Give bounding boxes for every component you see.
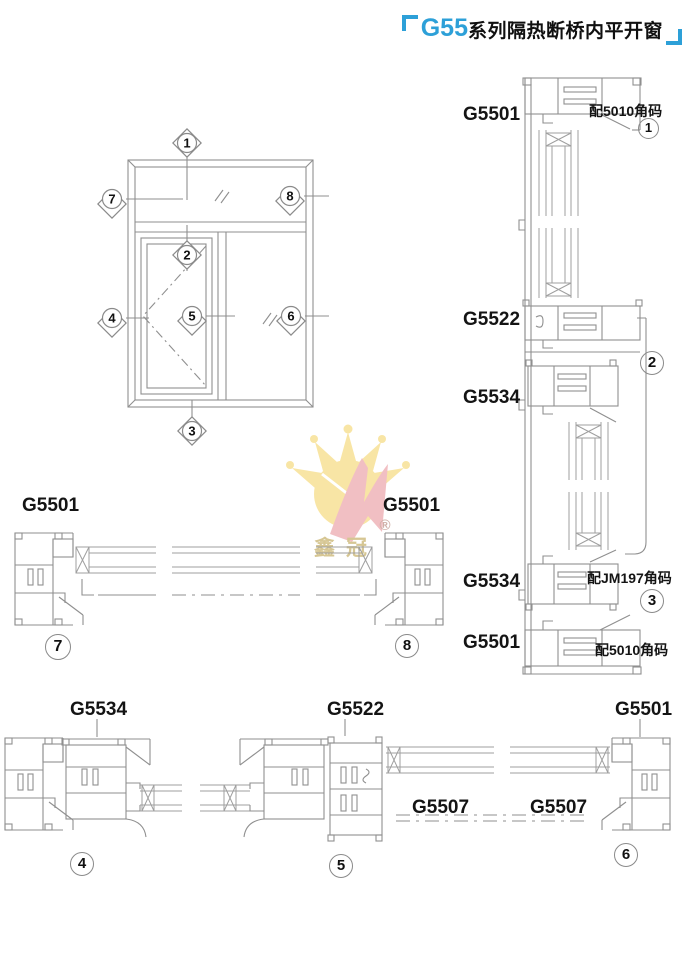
section-marker-6: 6 bbox=[277, 307, 305, 336]
profile-label-bottom-frame: G5501 bbox=[463, 632, 520, 654]
right-frame-profile bbox=[602, 738, 670, 830]
mid-label-right: G5501 bbox=[383, 495, 440, 517]
title-bracket-bottom-right-icon bbox=[666, 29, 682, 45]
callout-5: 5 bbox=[329, 854, 353, 878]
left-jamb-profile bbox=[15, 533, 83, 625]
right-jamb-profile bbox=[375, 533, 443, 625]
mid-label-left: G5501 bbox=[22, 495, 79, 517]
profile-transom-g5522 bbox=[523, 300, 642, 352]
section-marker-5: 5 bbox=[178, 307, 206, 336]
section-marker-7: 7 bbox=[98, 190, 126, 219]
casement-glass-unit bbox=[140, 785, 250, 811]
profile-label-top-frame: G5501 bbox=[463, 104, 520, 126]
svg-text:3: 3 bbox=[188, 424, 195, 439]
page-title: G55 系列隔热断桥内平开窗 bbox=[402, 15, 682, 45]
bottom-label-right: G5501 bbox=[615, 699, 672, 721]
drawing-sheet: { "colors": { "accent_blue": "#2da0d8", … bbox=[0, 0, 700, 965]
glazing-upper bbox=[539, 130, 578, 298]
section-marker-1: 1 bbox=[173, 129, 201, 157]
glass-label-left: G5507 bbox=[412, 797, 469, 819]
profile-label-transom: G5522 bbox=[463, 309, 520, 331]
svg-text:8: 8 bbox=[286, 189, 293, 204]
callout-3: 3 bbox=[640, 589, 664, 613]
left-frame-profile bbox=[5, 738, 73, 830]
svg-text:5: 5 bbox=[188, 309, 195, 324]
sash-edge-lines bbox=[82, 579, 376, 595]
callout-8: 8 bbox=[395, 634, 419, 658]
section-marker-4: 4 bbox=[98, 309, 126, 338]
svg-text:2: 2 bbox=[183, 248, 190, 263]
horizontal-section-top-drawing bbox=[10, 525, 450, 635]
bottom-label-left: G5534 bbox=[70, 699, 127, 721]
fixed-glass-unit bbox=[386, 747, 610, 773]
profile-label-upper-sash: G5534 bbox=[463, 387, 520, 409]
callout-7: 7 bbox=[45, 634, 71, 660]
left-sash-profile bbox=[62, 739, 150, 837]
corner-code-note-mid: 配JM197角码 bbox=[587, 568, 672, 588]
callout-6: 6 bbox=[614, 843, 638, 867]
glazing-lower bbox=[569, 422, 608, 550]
svg-text:7: 7 bbox=[108, 192, 115, 207]
profile-upper-sash-g5534 bbox=[526, 360, 618, 422]
title-bracket-top-left-icon bbox=[402, 15, 418, 31]
horizontal-section-bottom-drawing bbox=[0, 715, 700, 855]
glass-mark-right bbox=[263, 313, 277, 326]
glass-unit-top-light bbox=[76, 547, 372, 573]
title-series-name: 系列隔热断桥内平开窗 bbox=[468, 15, 663, 45]
window-elevation-drawing: 1 2 3 7 8 4 5 6 bbox=[85, 125, 330, 465]
callout-1: 1 bbox=[638, 118, 659, 139]
corner-code-note-bottom: 配5010角码 bbox=[595, 640, 668, 660]
middle-sash-profile bbox=[240, 739, 328, 837]
glass-mark-top bbox=[215, 190, 229, 203]
glass-label-right: G5507 bbox=[530, 797, 587, 819]
label-leader-lines bbox=[97, 719, 640, 737]
svg-text:4: 4 bbox=[108, 311, 116, 326]
mullion-profile-g5522 bbox=[328, 737, 382, 841]
callout-4: 4 bbox=[70, 852, 94, 876]
section-marker-2: 2 bbox=[173, 241, 201, 269]
bottom-label-mid: G5522 bbox=[327, 699, 384, 721]
callout-2: 2 bbox=[640, 351, 664, 375]
section-marker-8: 8 bbox=[276, 187, 304, 216]
section-marker-3: 3 bbox=[178, 417, 206, 445]
svg-text:6: 6 bbox=[287, 309, 294, 324]
profile-label-lower-sash: G5534 bbox=[463, 571, 520, 593]
title-series-code: G55 bbox=[421, 15, 468, 42]
svg-text:1: 1 bbox=[183, 136, 190, 151]
